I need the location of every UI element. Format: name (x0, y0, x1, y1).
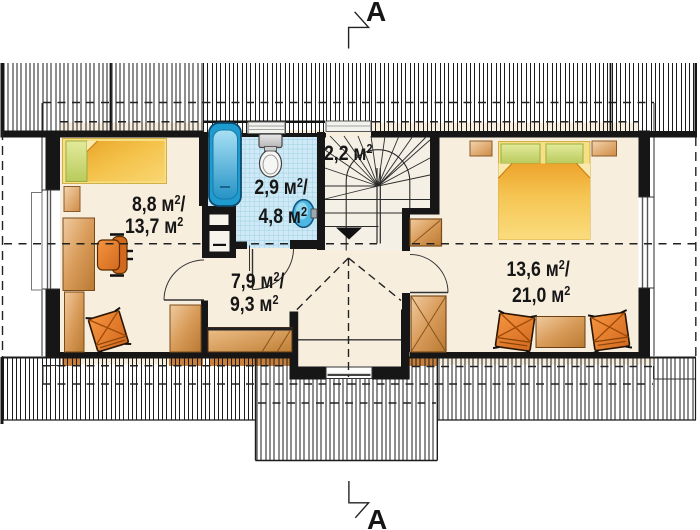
svg-text:4,8 м2: 4,8 м2 (259, 204, 308, 228)
svg-text:21,0 м2: 21,0 м2 (512, 283, 571, 307)
svg-text:2,2 м2: 2,2 м2 (324, 141, 373, 165)
svg-text:A: A (366, 0, 386, 27)
svg-text:A: A (367, 504, 387, 530)
svg-text:13,7 м2: 13,7 м2 (125, 214, 184, 238)
svg-text:9,3 м2: 9,3 м2 (230, 292, 279, 316)
